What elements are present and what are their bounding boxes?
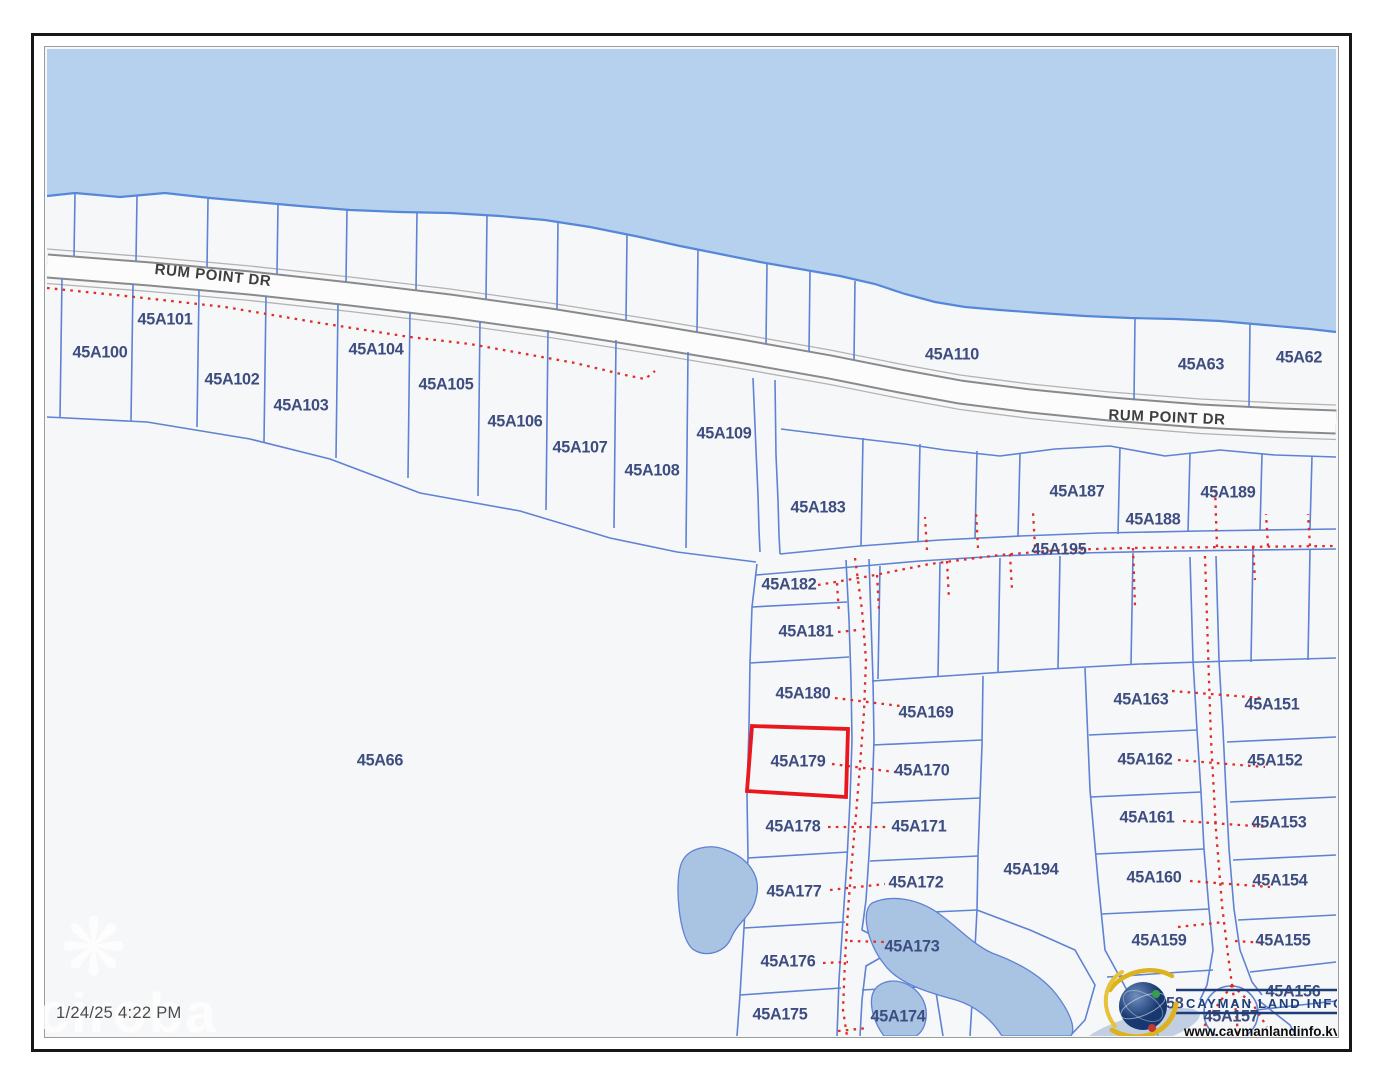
timestamp: 1/24/25 4:22 PM: [56, 1004, 182, 1023]
parcel-boundary-line: [614, 340, 616, 528]
parcel-label-45A178: 45A178: [766, 818, 821, 836]
parcel-boundary-line: [1238, 915, 1336, 920]
parcel-boundary-line: [136, 196, 137, 261]
parcel-boundary-line: [408, 312, 410, 478]
easement-line: [832, 764, 895, 772]
parcel-boundary-line: [775, 380, 780, 554]
parcel-boundary-line: [416, 212, 417, 290]
parcel-boundary-line: [1131, 553, 1133, 665]
parcel-boundary-line: [873, 740, 982, 745]
parcel-boundary-line: [1190, 557, 1213, 1000]
parcel-boundary-line: [1118, 447, 1120, 534]
parcel-label-45A100: 45A100: [73, 344, 128, 362]
parcel-label-45A109: 45A109: [697, 425, 752, 443]
parcel-boundary-line: [752, 602, 847, 607]
parcel-label-45A173: 45A173: [885, 938, 940, 956]
parcel-label-45A174: 45A174: [871, 1008, 926, 1026]
parcel-label-45A181: 45A181: [779, 623, 834, 641]
parcel-boundary-line: [131, 284, 133, 421]
parcel-label-45A103: 45A103: [274, 397, 329, 415]
easement-line: [835, 698, 900, 706]
parcel-label-45A169: 45A169: [899, 704, 954, 722]
parcel-label-45A63: 45A63: [1178, 356, 1224, 374]
parcel-boundary-line: [74, 194, 75, 256]
parcel-label-45A189: 45A189: [1201, 484, 1256, 502]
parcel-label-45A154: 45A154: [1253, 872, 1308, 890]
brand-org-text: CAYMAN LAND INFO: [1186, 996, 1337, 1011]
parcel-boundary-line: [1091, 792, 1201, 797]
parcel-boundary-line: [557, 221, 558, 309]
logo-green-dot: [1152, 990, 1160, 998]
parcel-boundary-line: [346, 209, 347, 282]
parcel-label-45A152: 45A152: [1248, 752, 1303, 770]
parcel-label-45A151: 45A151: [1245, 696, 1300, 714]
parcel-label-45A195: 45A195: [1032, 541, 1087, 559]
parcel-label-45A104: 45A104: [349, 341, 404, 359]
parcel-label-45A170: 45A170: [895, 762, 950, 780]
parcel-boundary-line: [740, 988, 841, 995]
parcel-boundary-line: [1134, 318, 1135, 400]
easement-line: [976, 512, 978, 548]
parcel-boundary-line: [478, 321, 480, 496]
parcel-boundary-line: [264, 296, 266, 442]
parcel-boundary-line: [1101, 909, 1209, 914]
parcel-label-45A101: 45A101: [138, 311, 193, 329]
parcel-boundary-line: [197, 290, 199, 427]
parcel-boundary-line: [1308, 550, 1310, 660]
easement-line: [1010, 554, 1012, 590]
parcel-label-45A102: 45A102: [205, 371, 260, 389]
parcel-boundary-line: [1233, 855, 1336, 860]
parcel-label-45A176: 45A176: [761, 953, 816, 971]
parcel-label-45A107: 45A107: [553, 439, 608, 457]
parcel-label-45A171: 45A171: [892, 818, 947, 836]
parcel-boundary-line: [870, 856, 978, 861]
parcel-boundary-line: [748, 852, 848, 858]
parcel-label-45A66: 45A66: [357, 752, 403, 770]
parcel-label-45A155: 45A155: [1256, 932, 1311, 950]
parcel-boundary-line: [975, 451, 977, 539]
parcel-label-45A163: 45A163: [1114, 691, 1169, 709]
parcel-boundary-line: [750, 657, 849, 663]
parcel-label-45A194: 45A194: [1004, 861, 1059, 879]
parcel-label-45A172: 45A172: [889, 874, 944, 892]
parcel-label-45A180: 45A180: [776, 685, 831, 703]
easement-line: [947, 561, 949, 600]
parcel-boundary-line: [60, 278, 62, 418]
parcel-boundary-line: [737, 564, 757, 1036]
parcel-boundary-line: [861, 438, 863, 546]
parcel-boundary-line: [1216, 556, 1262, 995]
parcel-boundary-line: [809, 271, 810, 352]
parcel-label-45A187: 45A187: [1050, 483, 1105, 501]
parcel-boundary-line: [1251, 551, 1253, 662]
parcel-boundary-line: [1227, 737, 1336, 742]
parcel-boundary-line: [781, 429, 1336, 457]
parcel-boundary-line: [872, 658, 1336, 681]
page: { "page": { "timestamp": "1/24/25 4:22 P…: [0, 0, 1383, 1084]
parcel-boundary-line: [1096, 849, 1204, 854]
parcel-label-45A153: 45A153: [1252, 814, 1307, 832]
parcel-boundary-line: [207, 199, 208, 267]
parcel-boundary-line: [1018, 453, 1020, 537]
easement-line: [1266, 514, 1268, 546]
parcel-boundary-line: [1249, 323, 1250, 407]
easement-line: [925, 517, 927, 550]
branding: CAYMAN LAND INFOwww.caymanlandinfo.ky: [1076, 970, 1337, 1036]
easement-line: [830, 884, 885, 890]
parcel-boundary-line: [1089, 730, 1197, 735]
parcel-label-45A179: 45A179: [771, 753, 826, 771]
parcel-boundary-line: [47, 417, 756, 562]
parcel-label-45A159: 45A159: [1132, 932, 1187, 950]
parcel-boundary-line: [744, 922, 845, 928]
parcel-label-45A106: 45A106: [488, 413, 543, 431]
parcel-boundary-line: [1230, 797, 1336, 802]
parcel-boundary-line: [336, 304, 338, 458]
easement-line: [1178, 922, 1224, 927]
parcel-boundary-line: [766, 263, 767, 344]
parcel-boundary-line: [486, 215, 487, 299]
easement-line: [837, 583, 839, 614]
logo-red-dot: [1148, 1024, 1156, 1032]
parcel-label-45A161: 45A161: [1120, 809, 1175, 827]
pond: [678, 847, 757, 954]
parcel-boundary-line: [938, 562, 940, 676]
parcel-label-45A105: 45A105: [419, 376, 474, 394]
parcel-label-45A183: 45A183: [791, 499, 846, 517]
parcel-boundary-line: [872, 798, 980, 803]
parcel-boundary-line: [918, 444, 920, 541]
parcel-boundary-line: [1310, 456, 1312, 529]
cadastral-map: 45A10045A10145A10245A10345A10445A10545A1…: [47, 49, 1337, 1036]
parcel-label-45A160: 45A160: [1127, 869, 1182, 887]
parcel-boundary-line: [1058, 556, 1060, 668]
parcel-label-45A182: 45A182: [762, 576, 817, 594]
parcel-label-45A62: 45A62: [1276, 349, 1322, 367]
brand-url-text: www.caymanlandinfo.ky: [1183, 1024, 1337, 1036]
parcel-boundary-line: [626, 235, 627, 320]
parcel-label-45A175: 45A175: [753, 1006, 808, 1024]
easement-line: [838, 1028, 868, 1031]
parcel-boundary-line: [697, 249, 698, 332]
parcel-boundary-line: [854, 281, 855, 360]
parcel-label-45A110: 45A110: [925, 346, 979, 364]
parcel-label-45A177: 45A177: [767, 883, 822, 901]
easement-line: [838, 630, 858, 632]
parcel-boundary-line: [1250, 962, 1336, 972]
parcel-boundary-line: [1260, 454, 1262, 530]
parcel-boundary-line: [753, 378, 760, 552]
parcel-boundary-line: [1188, 453, 1190, 532]
parcel-label-45A188: 45A188: [1126, 511, 1181, 529]
parcel-label-45A108: 45A108: [625, 462, 680, 480]
parcel-boundary-line: [686, 352, 688, 548]
parcel-boundary-line: [277, 204, 278, 274]
parcel-boundary-line: [546, 330, 548, 510]
parcel-boundary-line: [860, 559, 880, 1036]
parcel-label-45A162: 45A162: [1118, 751, 1173, 769]
parcel-boundary-line: [998, 558, 1000, 672]
